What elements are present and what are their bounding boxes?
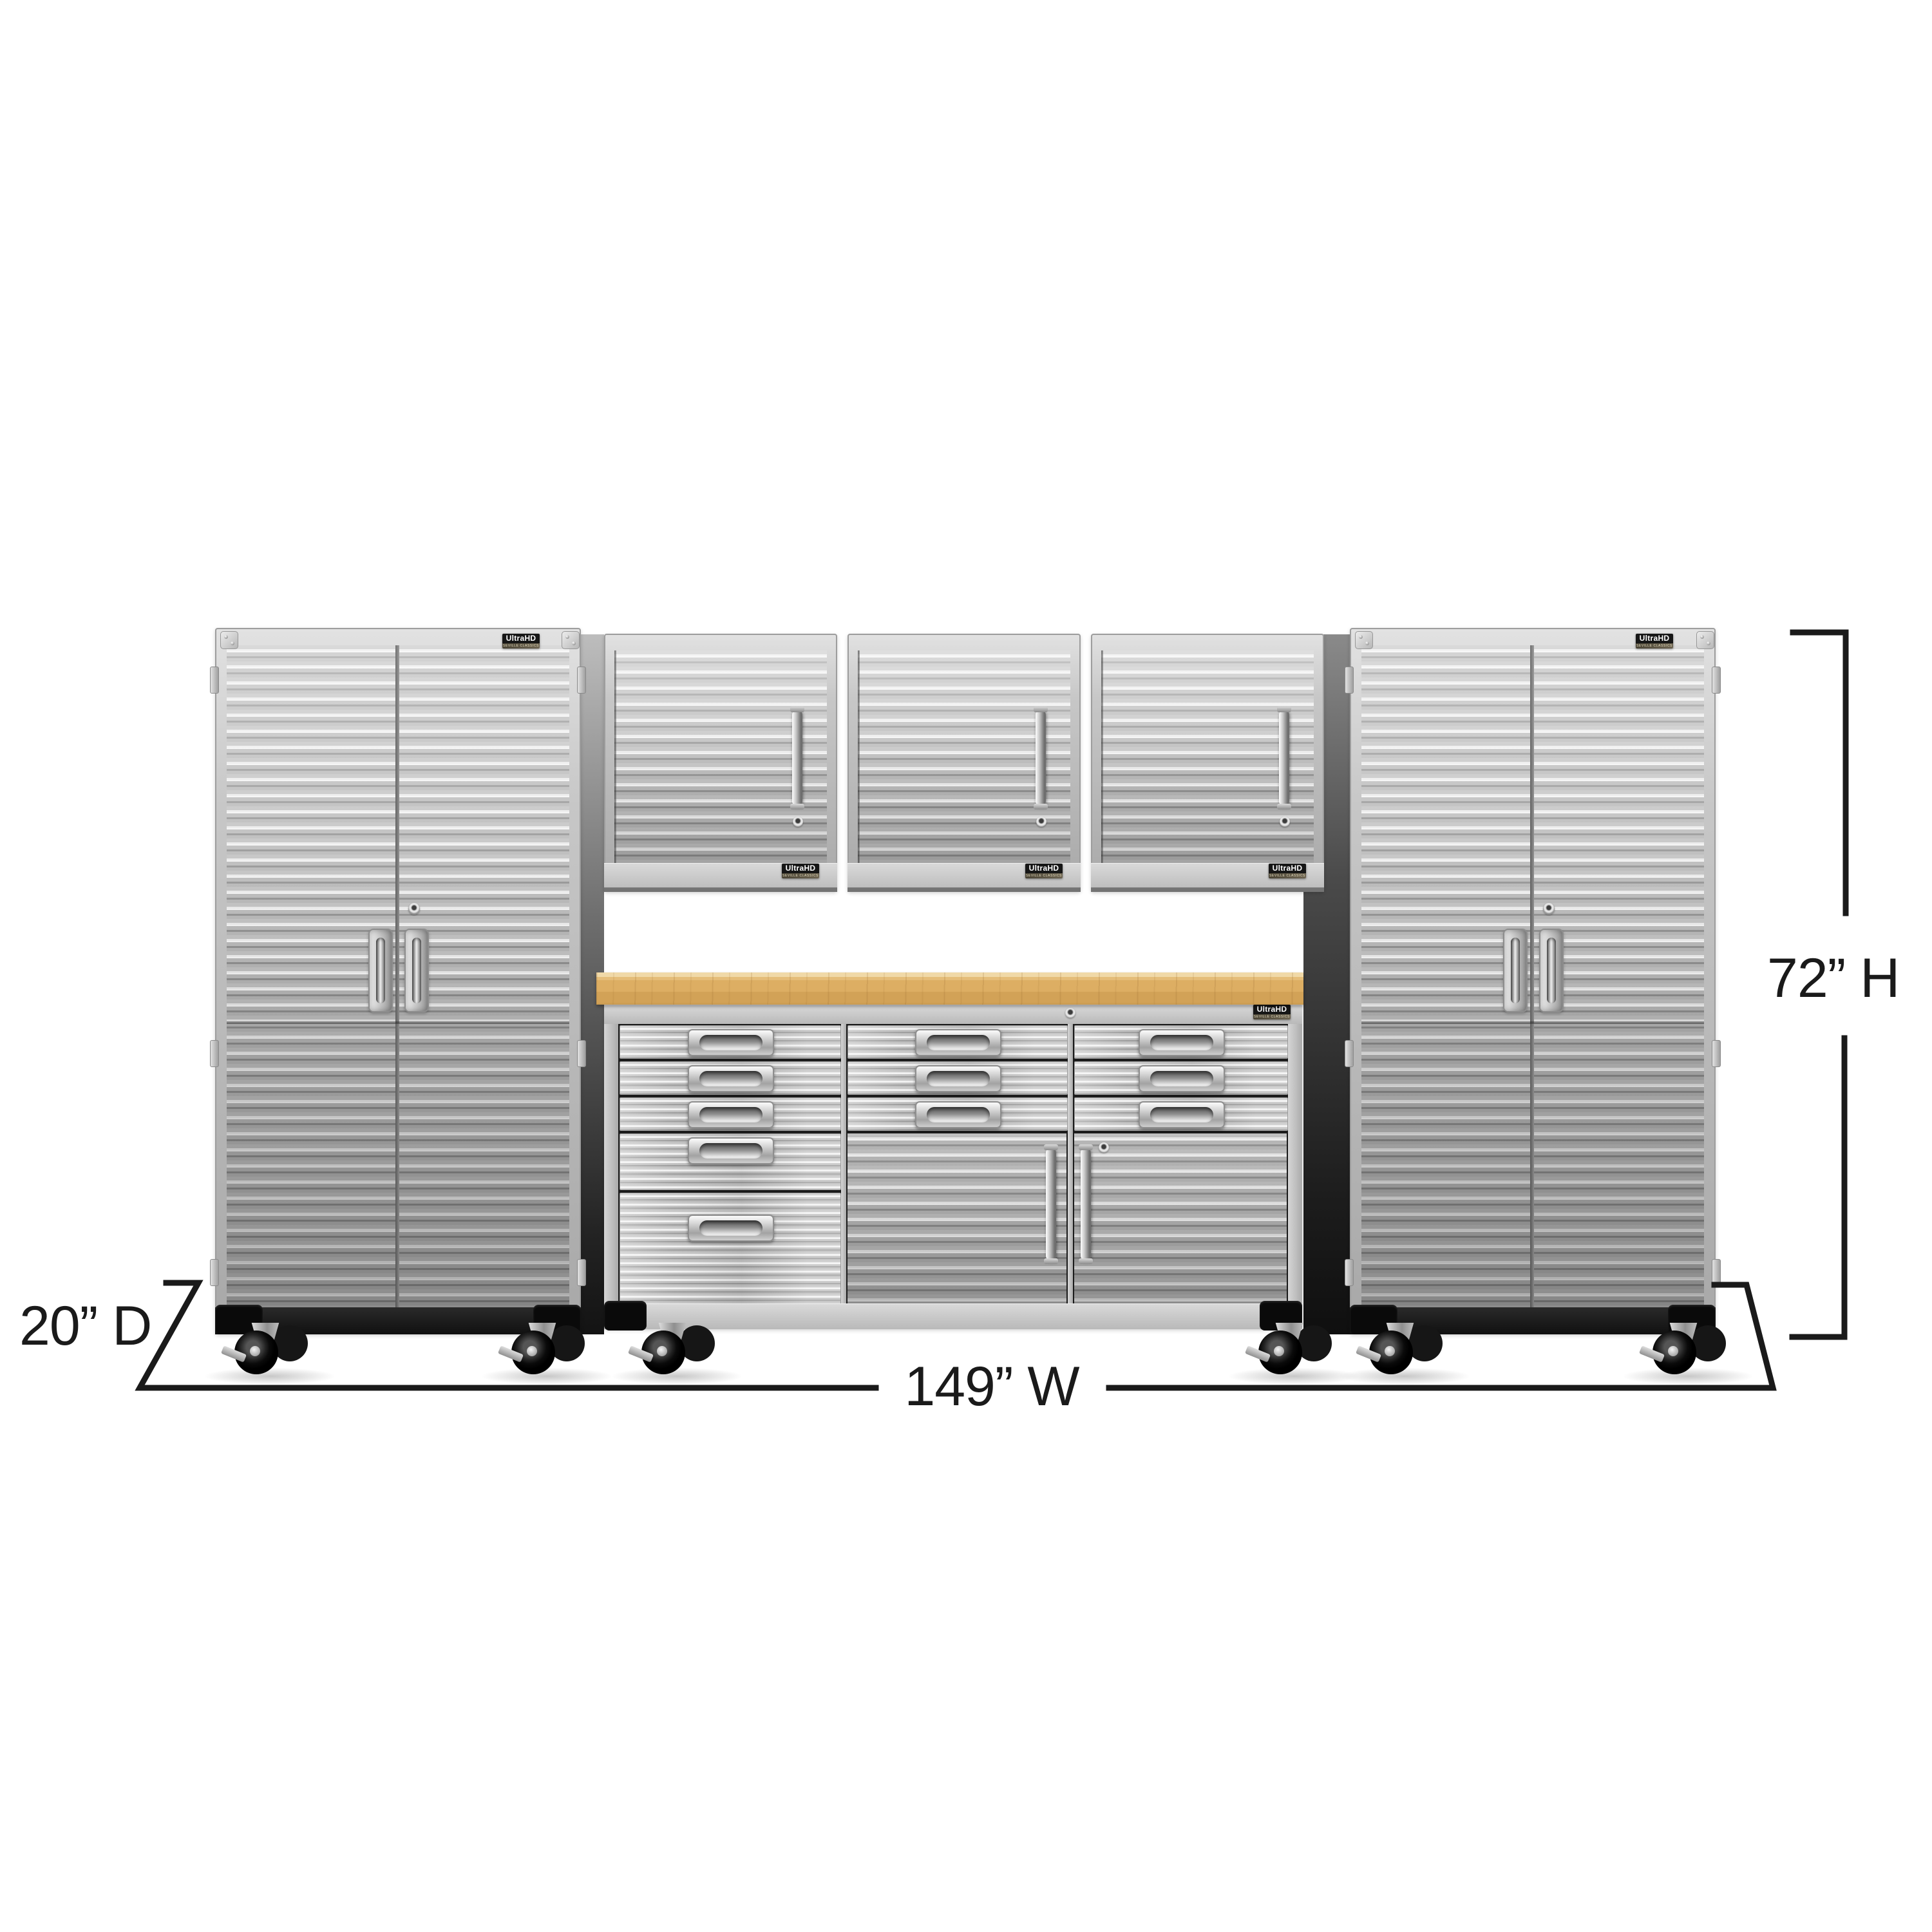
height-dimension-line-bottom xyxy=(1792,1038,1844,1337)
handle-recess xyxy=(699,1035,762,1050)
height-dimension-label: 72” H xyxy=(1767,947,1899,1010)
corner-bracket xyxy=(220,631,238,649)
brand-subtext: SEVILLE CLASSICS xyxy=(1636,643,1673,649)
hinge-plate xyxy=(210,1259,219,1286)
caster-hub xyxy=(1274,1346,1284,1356)
drawer-handle xyxy=(688,1137,774,1164)
tall-cabinet-left-handle-right xyxy=(404,929,429,1012)
ultrahd-badge: UltraHD SEVILLE CLASSICS xyxy=(782,864,819,878)
wall-cabinet-1-keyhole xyxy=(793,817,803,827)
drawer-handle xyxy=(688,1215,774,1242)
hinge-plate xyxy=(1345,1040,1354,1067)
caster-wheel xyxy=(498,1323,595,1378)
floor-shadow xyxy=(1229,1368,1358,1385)
floor-shadow xyxy=(1340,1368,1469,1385)
corner-bracket xyxy=(1355,631,1373,649)
drawer-handle xyxy=(1139,1029,1225,1056)
caster-wheel xyxy=(1245,1323,1342,1378)
handle-recess xyxy=(1150,1071,1213,1086)
drawer-handle xyxy=(915,1065,1001,1092)
wall-cabinet-1-handle xyxy=(792,710,802,806)
handle-recess xyxy=(927,1035,990,1050)
corner-bracket xyxy=(1696,631,1714,649)
handle-recess xyxy=(699,1107,762,1122)
caster-hub xyxy=(527,1346,537,1356)
floor-shadow xyxy=(612,1368,741,1385)
hinge-plate xyxy=(577,1040,586,1067)
drawer-handle xyxy=(688,1029,774,1056)
floor-shadow xyxy=(205,1368,334,1385)
workbench-door-left xyxy=(848,1133,1066,1303)
brand-subtext: SEVILLE CLASSICS xyxy=(782,873,819,878)
hinge-plate xyxy=(1345,1259,1354,1286)
height-dimension-line-top xyxy=(1793,632,1846,913)
wall-cabinet-3-hinge-seam xyxy=(1101,650,1103,863)
wall-cabinet-3-handle xyxy=(1279,710,1289,806)
caster-hub xyxy=(657,1346,667,1356)
floor-shadow xyxy=(482,1368,611,1385)
brand-subtext: SEVILLE CLASSICS xyxy=(1253,1014,1291,1019)
ultrahd-badge: UltraHD SEVILLE CLASSICS xyxy=(1636,634,1673,649)
drawer-handle xyxy=(915,1101,1001,1128)
handle-slot xyxy=(1511,938,1520,1003)
wall-cabinet-2-keyhole xyxy=(1036,817,1046,827)
drawer-handle xyxy=(688,1065,774,1092)
depth-dimension-label: 20” D xyxy=(19,1294,151,1358)
handle-recess xyxy=(927,1107,990,1122)
hinge-plate xyxy=(210,667,219,694)
hinge-plate xyxy=(1712,667,1721,694)
brand-subtext: SEVILLE CLASSICS xyxy=(1025,873,1063,878)
workbench-door-handle xyxy=(1081,1148,1091,1261)
drawer-handle xyxy=(1139,1101,1225,1128)
workbench-stile xyxy=(841,1024,846,1305)
tall-cabinet-right-handle-right xyxy=(1539,929,1564,1012)
tall-cabinet-left-panel-seam xyxy=(227,1021,569,1024)
handle-recess xyxy=(1150,1035,1213,1050)
hinge-plate xyxy=(577,667,586,694)
wall-cabinet-1-under-lip xyxy=(604,887,837,892)
brand-name: UltraHD xyxy=(1636,634,1673,643)
handle-recess xyxy=(699,1220,762,1236)
handle-recess xyxy=(1150,1107,1213,1122)
handle-slot xyxy=(1547,938,1556,1003)
hinge-plate xyxy=(210,1040,219,1067)
handle-recess xyxy=(699,1143,762,1159)
workbench-top-rail xyxy=(604,1005,1302,1024)
handle-slot xyxy=(376,938,385,1003)
workbench-stile xyxy=(1288,1024,1302,1305)
handle-recess xyxy=(699,1071,762,1086)
ultrahd-badge: UltraHD SEVILLE CLASSICS xyxy=(1253,1005,1291,1019)
caster-hub xyxy=(250,1346,260,1356)
corner-bracket xyxy=(562,631,580,649)
brand-name: UltraHD xyxy=(1269,864,1306,873)
tall-cabinet-right-panel-seam xyxy=(1361,1021,1704,1024)
floor-shadow xyxy=(1624,1368,1752,1385)
tall-cabinet-left-handle-left xyxy=(368,929,393,1012)
wall-cabinet-2-handle xyxy=(1036,710,1046,806)
handle-recess xyxy=(927,1071,990,1086)
hinge-plate xyxy=(1345,667,1354,694)
workbench-door-keyhole xyxy=(1099,1142,1109,1153)
ultrahd-badge: UltraHD SEVILLE CLASSICS xyxy=(502,634,540,649)
brand-name: UltraHD xyxy=(782,864,819,873)
caster-wheel xyxy=(629,1323,725,1378)
caster-wheel xyxy=(1640,1323,1736,1378)
tall-cabinet-right-door-seam xyxy=(1530,645,1534,1307)
width-dimension-label: 149” W xyxy=(902,1355,1082,1419)
drawer-handle xyxy=(1139,1065,1225,1092)
drawer-handle xyxy=(915,1029,1001,1056)
wood-worktop xyxy=(596,972,1303,1005)
workbench-door-handle xyxy=(1046,1148,1056,1261)
caster-wheel xyxy=(1356,1323,1453,1378)
workbench-stile xyxy=(604,1024,618,1305)
tall-cabinet-right-keyhole xyxy=(1543,903,1555,914)
tall-cabinet-right-handle-left xyxy=(1503,929,1528,1012)
brand-subtext: SEVILLE CLASSICS xyxy=(502,643,540,649)
hinge-plate xyxy=(1712,1040,1721,1067)
ultrahd-badge: UltraHD SEVILLE CLASSICS xyxy=(1269,864,1306,878)
wall-cabinet-1-hinge-seam xyxy=(614,650,616,863)
wall-cabinet-2-under-lip xyxy=(848,887,1081,892)
workbench-drawer xyxy=(620,1193,841,1305)
handle-slot xyxy=(412,938,421,1003)
workbench-stile xyxy=(1068,1024,1073,1305)
hinge-plate xyxy=(577,1259,586,1286)
wall-cabinet-3-keyhole xyxy=(1280,817,1290,827)
caster-hub xyxy=(1385,1346,1395,1356)
caster-hub xyxy=(1668,1346,1678,1356)
wall-cabinet-3-under-lip xyxy=(1091,887,1324,892)
brand-name: UltraHD xyxy=(1025,864,1063,873)
drawer-handle xyxy=(688,1101,774,1128)
wall-cabinet-2-hinge-seam xyxy=(858,650,860,863)
ultrahd-badge: UltraHD SEVILLE CLASSICS xyxy=(1025,864,1063,878)
tall-cabinet-left-door-seam xyxy=(395,645,399,1307)
hinge-plate xyxy=(1712,1259,1721,1286)
brand-subtext: SEVILLE CLASSICS xyxy=(1269,873,1306,878)
caster-wheel xyxy=(222,1323,318,1378)
tall-cabinet-left-keyhole xyxy=(408,903,420,914)
workbench-door-right xyxy=(1074,1133,1287,1303)
brand-name: UltraHD xyxy=(1253,1005,1291,1014)
brand-name: UltraHD xyxy=(502,634,540,643)
product-dimension-diagram: UltraHD SEVILLE CLASSICS UltraHD SEVILLE… xyxy=(0,0,1932,1932)
workbench-rail-keyhole xyxy=(1065,1008,1075,1018)
